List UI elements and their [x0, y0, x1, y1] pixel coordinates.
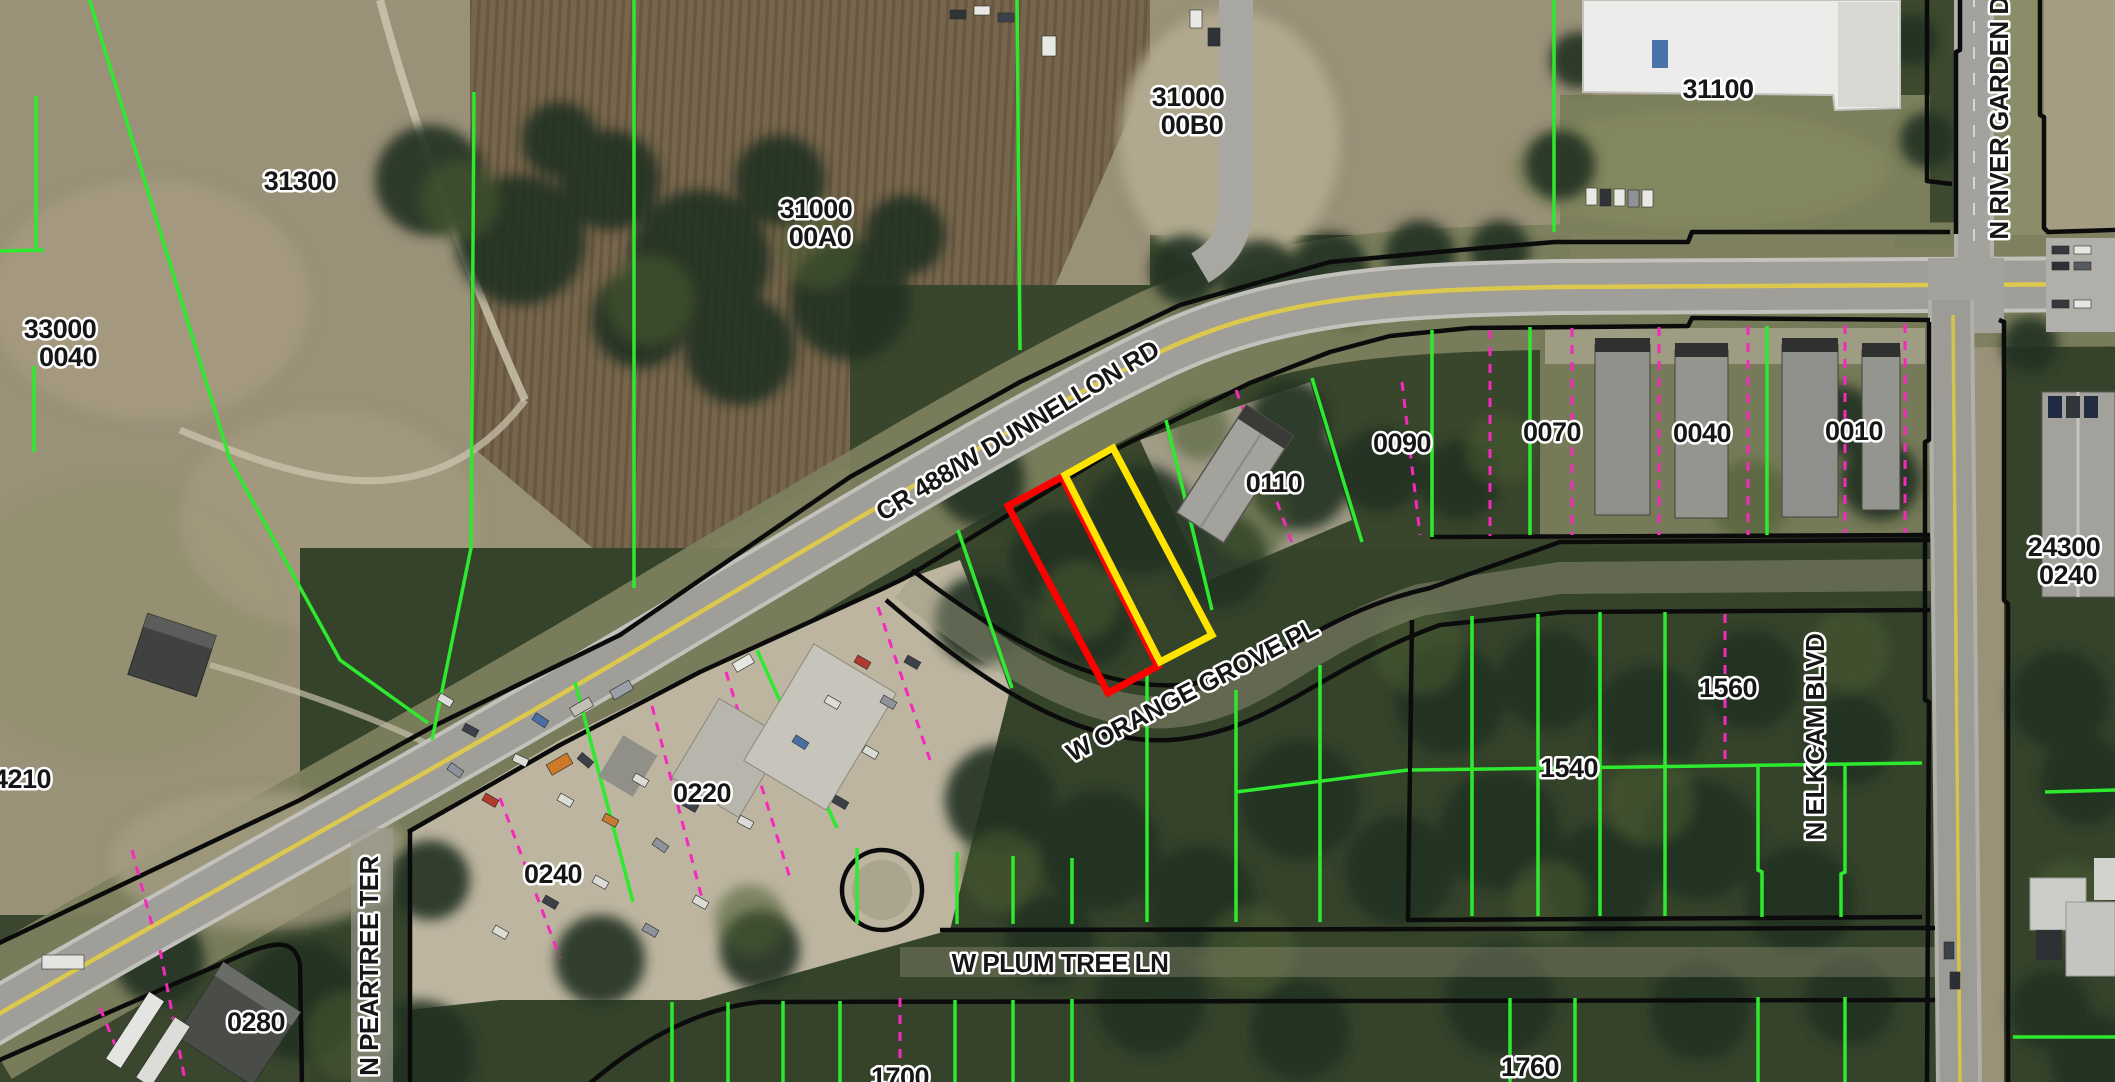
gis-map-viewport[interactable]: 31300 33000 0040 31000 00A0 31000 00B0 3…: [0, 0, 2115, 1082]
parcel-label-0070: 0070: [1523, 417, 1581, 447]
parcel-label-0240: 0240: [524, 859, 582, 889]
parked-cars-31100: [1586, 188, 1653, 207]
parcel-label-31000b-l2: 00B0: [1161, 110, 1224, 140]
parcel-label-31000b-l1: 31000: [1152, 82, 1225, 112]
road-label-elkcam: N ELKCAM BLVD: [1800, 634, 1830, 841]
parcel-label-0280: 0280: [227, 1007, 285, 1037]
road-label-plum-tree: W PLUM TREE LN: [952, 948, 1169, 978]
parcel-label-31100: 31100: [1682, 74, 1753, 104]
parcel-label-31300: 31300: [264, 166, 337, 196]
road-label-peartree: N PEARTREE TER: [354, 855, 384, 1076]
parcel-label-1540: 1540: [1540, 753, 1598, 783]
parcel-label-31000a-l2: 00A0: [789, 222, 852, 252]
road-label-river-garden: N RIVER GARDEN D: [1984, 0, 2014, 240]
parcel-label-0010: 0010: [1825, 416, 1883, 446]
parcel-label-0110: 0110: [1246, 468, 1303, 498]
parcel-label-1560: 1560: [1699, 673, 1757, 703]
parcel-label-0090: 0090: [1373, 428, 1431, 458]
parcel-label-0040: 0040: [1673, 418, 1731, 448]
parcel-map-canvas[interactable]: 31300 33000 0040 31000 00A0 31000 00B0 3…: [0, 0, 2115, 1082]
parcel-label-1700: 1700: [871, 1062, 929, 1082]
parking-lot-northeast: [2046, 238, 2115, 332]
parcel-label-24300-l2: 0240: [2039, 560, 2097, 590]
parcel-label-0220: 0220: [673, 778, 731, 808]
parcel-label-31000a-l1: 31000: [780, 194, 853, 224]
parcel-label-1760: 1760: [1501, 1052, 1559, 1082]
parcel-label-33000-l1: 33000: [24, 314, 97, 344]
parcel-label-4210: 4210: [0, 764, 51, 794]
parcel-label-33000-l2: 0040: [39, 342, 97, 372]
parcel-label-24300-l1: 24300: [2028, 532, 2101, 562]
